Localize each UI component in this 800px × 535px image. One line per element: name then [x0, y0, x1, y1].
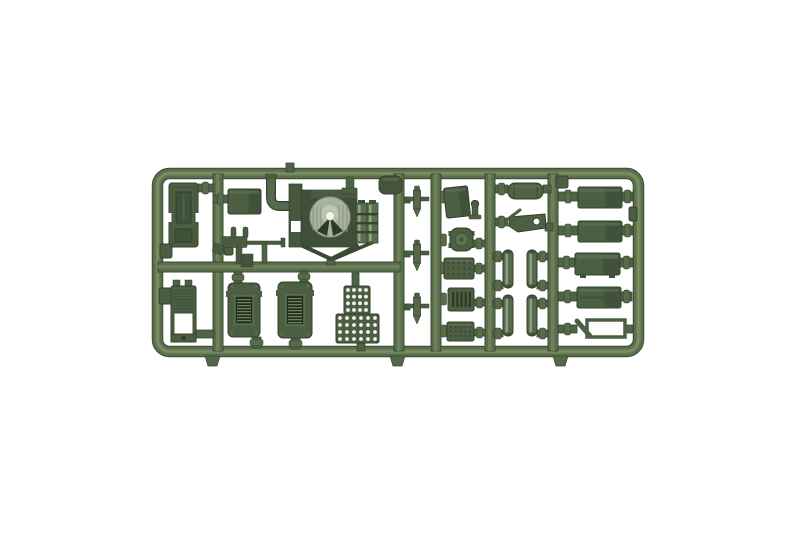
- engine-box: [228, 189, 261, 214]
- louver-box-1: [226, 283, 262, 337]
- ammo-crate-bottom: [336, 314, 379, 343]
- connector-stub: [558, 224, 578, 237]
- stowage-box-2: [577, 287, 621, 308]
- connector-stub: [622, 224, 633, 237]
- connector-stub: [473, 263, 485, 274]
- connector-stub: [537, 298, 548, 309]
- tool-bracket: [508, 210, 546, 232]
- ribbed-crate: [171, 280, 196, 342]
- product-photo: Olive green injection-moulded sprue of m…: [0, 0, 800, 530]
- t-handle: [469, 200, 481, 219]
- rail-nub: [629, 207, 637, 221]
- connector-stub: [493, 328, 503, 339]
- connector-stub: [622, 190, 633, 203]
- connector-stub: [289, 338, 302, 349]
- sprue-svg: [0, 0, 800, 530]
- connector-stub: [357, 343, 365, 351]
- connector-stub: [537, 280, 548, 291]
- rail-box-a: [160, 244, 172, 258]
- louver-box-2: [276, 282, 314, 338]
- connector-stub: [558, 323, 577, 335]
- connector-stub: [213, 193, 228, 205]
- connector-stub: [352, 273, 359, 286]
- connector-stub: [232, 272, 244, 283]
- connector-stub: [474, 327, 485, 338]
- spring-1: [503, 250, 513, 288]
- rivet-plate: [444, 258, 474, 279]
- gate-stub: [390, 356, 405, 366]
- connector-stub: [250, 337, 263, 348]
- connector-stub: [196, 330, 214, 338]
- cargo-bed: [168, 183, 200, 247]
- connector-stub: [620, 256, 633, 269]
- connector-stub: [298, 271, 310, 282]
- grill-plate: [448, 288, 474, 311]
- ammo-crate-top: [344, 286, 370, 314]
- turret-assembly: [289, 184, 378, 259]
- connector-stub: [474, 297, 485, 308]
- r5-top-box: [556, 176, 568, 188]
- runner-vertical-4: [485, 174, 495, 351]
- runner-horizontal: [158, 262, 400, 272]
- top-rail-box: [379, 176, 402, 194]
- stowage-box-1: [575, 253, 620, 278]
- fuel-tank-1: [578, 187, 622, 208]
- connector-stub: [537, 251, 548, 262]
- connector-stub: [473, 238, 485, 249]
- gate-stub: [553, 356, 568, 366]
- connector-stub: [286, 163, 294, 172]
- connector-stub: [537, 328, 548, 339]
- gate-stub: [205, 356, 220, 366]
- connector-stub: [493, 298, 503, 309]
- connector-stub: [495, 216, 508, 228]
- connector-stub: [558, 290, 577, 303]
- tread-plate: [447, 322, 474, 341]
- muffler: [508, 183, 543, 199]
- connector-stub: [621, 290, 632, 303]
- runner-vertical-3: [431, 174, 441, 351]
- runner-vertical-5: [548, 174, 558, 351]
- connector-stub: [558, 190, 578, 203]
- tilted-box: [443, 186, 470, 218]
- connector-stub: [558, 256, 575, 269]
- window-frame-part: [577, 320, 625, 337]
- connector-stub: [495, 183, 508, 195]
- connector-stub: [441, 293, 447, 305]
- spring-3: [503, 295, 513, 336]
- connector-stub: [493, 280, 503, 291]
- connector-stub: [543, 185, 551, 193]
- fuel-tank-2: [578, 221, 622, 242]
- round-hatch: [449, 228, 475, 251]
- connector-stub: [493, 251, 503, 262]
- rail-hanger: [342, 177, 357, 194]
- connector-stub: [441, 234, 447, 246]
- connector-stub: [441, 325, 447, 337]
- spring-2: [527, 250, 537, 288]
- connector-stub: [197, 182, 214, 194]
- spring-4: [527, 295, 537, 336]
